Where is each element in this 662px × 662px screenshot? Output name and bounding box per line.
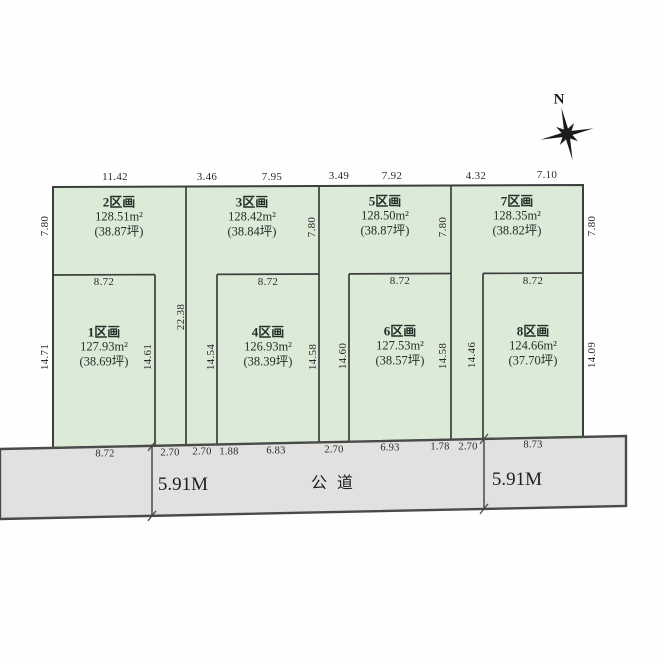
parcel-6-area: 127.53m² (376, 339, 425, 354)
parcel-4-name: 4区画 (244, 325, 293, 340)
parcel-1-width-label: 8.72 (94, 276, 114, 288)
parcel-1-label: 1区画 127.93m² (38.69坪) (80, 325, 129, 370)
side-dim-label: 14.60 (337, 343, 349, 369)
parcel-5-area: 128.50m² (361, 209, 410, 224)
frontage-dim-label: 1.78 (430, 442, 449, 453)
side-dim-label: 7.80 (586, 216, 598, 236)
parcel-1-area: 127.93m² (80, 340, 129, 355)
parcel-4-width-label: 8.72 (258, 276, 278, 288)
parcel-7-label: 7区画 128.35m² (38.82坪) (493, 194, 542, 239)
parcel-2-label: 2区画 128.51m² (38.87坪) (95, 195, 144, 240)
parcel-2-name: 2区画 (95, 195, 144, 210)
side-dim-label: 14.54 (205, 344, 217, 370)
frontage-dim-label: 2.70 (192, 447, 211, 458)
side-dim-label: 14.58 (437, 343, 449, 369)
parcel-6-name: 6区画 (376, 324, 425, 339)
parcel-2-area: 128.51m² (95, 210, 144, 225)
frontage-dim-label: 2.70 (160, 447, 179, 458)
top-dim-label: 3.49 (329, 170, 349, 182)
side-dim-label: 14.61 (142, 344, 154, 370)
parcel-8-area: 124.66m² (509, 339, 558, 354)
side-dim-label: 7.80 (39, 216, 51, 236)
frontage-dim-label: 6.93 (380, 443, 399, 454)
top-dim-label: 3.46 (197, 171, 217, 183)
parcel-3-label: 3区画 128.42m² (38.84坪) (228, 195, 277, 240)
parcel-7-area: 128.35m² (493, 209, 542, 224)
frontage-dim-label: 6.83 (266, 445, 285, 456)
parcel-5-name: 5区画 (361, 194, 410, 209)
parcel-2-tsubo: (38.87坪) (95, 225, 144, 240)
top-dim-label: 7.10 (537, 169, 557, 181)
side-dim-label: 14.71 (39, 344, 51, 370)
frontage-dim-label: 8.72 (95, 449, 114, 460)
top-dim-label: 11.42 (102, 171, 128, 183)
parcel-5-tsubo: (38.87坪) (361, 224, 410, 239)
parcel-3-tsubo: (38.84坪) (228, 225, 277, 240)
parcel-4-tsubo: (38.39坪) (244, 355, 293, 370)
top-dim-label: 7.92 (382, 170, 402, 182)
parcel-7-tsubo: (38.82坪) (493, 224, 542, 239)
parcel-1-name: 1区画 (80, 325, 129, 340)
parcel-8-width-label: 8.72 (523, 275, 543, 287)
parcel-6-width-label: 8.72 (390, 275, 410, 287)
parcel-4-label: 4区画 126.93m² (38.39坪) (244, 325, 293, 370)
parcel-3-area: 128.42m² (228, 210, 277, 225)
compass-rose-icon (535, 102, 599, 166)
parcel-5-label: 5区画 128.50m² (38.87坪) (361, 194, 410, 239)
compass-north-label: N (554, 92, 565, 109)
parcel-8-name: 8区画 (509, 324, 558, 339)
road-name-label: 公道 (301, 469, 363, 493)
side-dim-label: 14.46 (466, 342, 478, 368)
parcel-6-tsubo: (38.57坪) (376, 354, 425, 369)
top-dim-label: 7.95 (262, 171, 282, 183)
side-dim-label: 7.80 (306, 217, 318, 237)
side-dim-label: 7.80 (437, 217, 449, 237)
parcel-4-area: 126.93m² (244, 340, 293, 355)
parcel-7-name: 7区画 (493, 194, 542, 209)
frontage-dim-label: 1.88 (219, 446, 238, 457)
side-dim-label: 14.58 (307, 344, 319, 370)
parcel-8-tsubo: (37.70坪) (509, 354, 558, 369)
road-width-right-label: 5.91M (492, 469, 542, 491)
side-dim-label: 22.38 (175, 304, 187, 330)
parcel-1-tsubo: (38.69坪) (80, 355, 129, 370)
top-dim-label: 4.32 (466, 170, 486, 182)
parcel-8-label: 8区画 124.66m² (37.70坪) (509, 324, 558, 369)
frontage-dim-label: 2.70 (324, 444, 343, 455)
frontage-dim-label: 8.73 (523, 440, 542, 451)
frontage-dim-label: 2.70 (458, 441, 477, 452)
road-width-left-label: 5.91M (158, 474, 208, 496)
side-dim-label: 14.09 (586, 342, 598, 368)
plot-plan: N 11.42 3.46 7.95 3.49 7.92 4.32 7.10 2区… (0, 0, 662, 662)
parcel-3-name: 3区画 (228, 195, 277, 210)
parcel-6-label: 6区画 127.53m² (38.57坪) (376, 324, 425, 369)
